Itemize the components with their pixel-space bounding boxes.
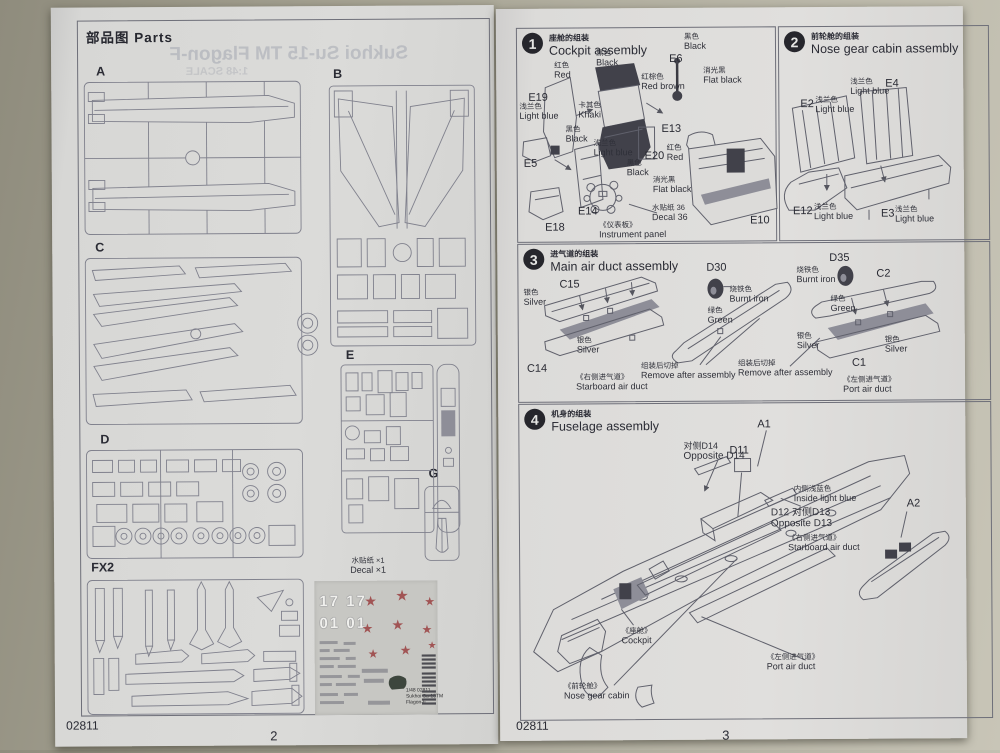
step1-badge: 1: [522, 33, 543, 54]
showthrough-scale: 1:48 SCALE: [128, 66, 248, 79]
manual-spread: Sukhoi Su-15 TM Flagon-F 1:48 SCALE 部品图 …: [0, 0, 1000, 753]
port-air-duct-label: 《左侧进气道》Port air duct: [843, 376, 896, 395]
decal-count-label: 水贴纸 ×1Decal ×1: [350, 557, 386, 576]
color-label-red: 红色Red: [667, 144, 684, 163]
part-code-c2: C2: [876, 268, 890, 280]
color-label-light-blue: 浅兰色Light blue: [850, 78, 889, 97]
sprue-c-label: C: [95, 240, 104, 254]
part-code-e14: E14: [578, 205, 598, 217]
color-label-silver: 银色Silver: [885, 336, 908, 355]
part-code-e18: E18: [545, 222, 565, 234]
color-label-silver: 银色Silver: [797, 332, 820, 351]
star-decal: ★: [361, 621, 373, 637]
star-decal: ★: [368, 647, 379, 661]
star-decal: ★: [395, 587, 409, 605]
inside-light-blue-label: 内侧浅蓝色Inside light blue: [794, 485, 857, 504]
step2-header: 2 前轮舱的组装Nose gear cabin assembly: [784, 30, 958, 56]
color-label-silver: 银色Silver: [577, 336, 600, 355]
photo-of-instruction-manual: { "left_page": { "header": "部品图 Parts", …: [0, 0, 1000, 750]
port-air-duct-label: 《左侧进气道》Port air duct: [767, 653, 820, 672]
part-code-e2: E2: [800, 98, 814, 110]
color-label-green: 绿色Green: [831, 295, 856, 314]
sprue-d-label: D: [100, 432, 109, 446]
step4-badge: 4: [524, 409, 545, 430]
part-code-d11: D11: [729, 444, 748, 456]
step3-badge: 3: [523, 249, 544, 270]
star-decal: ★: [391, 617, 404, 634]
star-decal: ★: [400, 643, 412, 659]
star-decal: ★: [424, 594, 435, 608]
decal-number-01: 01 01: [319, 615, 367, 632]
part-code-d30: D30: [706, 262, 726, 274]
step1-header: 1 座舱的组装Cockpit assembly: [522, 32, 647, 58]
sprue-b-label: B: [333, 67, 342, 81]
left-page-code: 02811: [66, 718, 99, 732]
color-label-light-blue: 浅兰色Light blue: [594, 139, 633, 158]
right-page-number: 3: [722, 728, 729, 743]
instrument-panel-label: 《仪表板》Instrument panel: [599, 221, 666, 240]
starboard-air-duct-label: 《右侧进气道》Starboard air duct: [576, 373, 648, 392]
color-label-black: 黑色Black: [627, 159, 649, 178]
color-label-light-blue: 浅兰色Light blue: [519, 103, 558, 122]
left-page-number: 2: [270, 728, 277, 743]
decal-sheet-footer: 1/48 02811 Sukhoi Su-15TM Flagon-F: [406, 688, 443, 705]
star-decal: ★: [428, 640, 437, 651]
color-label-light-blue: 浅兰色Light blue: [814, 203, 853, 222]
step4-header: 4 机身的组装Fuselage assembly: [524, 408, 659, 434]
color-label-red-brown: 红棕色Red brown: [641, 73, 685, 92]
decal-number-17: 17 17: [319, 593, 367, 610]
part-code-c1: C1: [852, 357, 866, 369]
color-label-burnt-iron: 烧铁色Burnt iron: [729, 285, 768, 304]
part-code-e4: E4: [885, 78, 899, 90]
color-label-silver: 银色Silver: [523, 289, 546, 308]
color-label-black: 黑色Black: [565, 125, 587, 144]
part-code-c14: C14: [527, 363, 547, 375]
part-code-e12: E12: [793, 205, 813, 217]
sprue-a-label: A: [96, 64, 105, 78]
step1-frame: [516, 26, 777, 243]
color-label-flat-black: 消光黑Flat black: [653, 176, 692, 195]
step4-frame: [518, 401, 993, 721]
color-label-light-blue: 浅兰色Light blue: [895, 205, 934, 224]
step3-header: 3 进气道的组装Main air duct assembly: [523, 248, 678, 274]
part-code-a2: A2: [907, 497, 921, 509]
star-decal: ★: [364, 593, 377, 610]
remove-after-assembly-label: 组装后切掉Remove after assembly: [641, 362, 736, 381]
step2-badge: 2: [784, 31, 805, 52]
right-page-code: 02811: [516, 719, 549, 733]
part-code-c15: C15: [559, 279, 579, 291]
showthrough-title: Sukhoi Su-15 TM Flagon-F: [128, 43, 408, 67]
part-code-e6: E6: [669, 53, 683, 65]
remove-after-assembly-label: 组装后切掉Remove after assembly: [738, 359, 833, 378]
opposite-d13-label: D12 对侧D13Opposite D13: [771, 507, 832, 530]
part-code-e10: E10: [750, 214, 770, 226]
part-code-e5: E5: [524, 158, 538, 170]
parts-header: 部品图 Parts: [86, 26, 173, 47]
color-label-burnt-iron: 烧铁色Burnt iron: [796, 266, 835, 285]
nose-gear-cabin-label: 《前轮舱》Nose gear cabin: [564, 682, 630, 701]
color-label-black: 黑色Black: [596, 49, 618, 68]
cockpit-label: 《座舱》Cockpit: [622, 627, 652, 646]
part-code-a1: A1: [757, 418, 771, 430]
color-label-red: 红色Red: [554, 62, 571, 81]
star-decal: ★: [422, 622, 433, 636]
sprue-fx2-label: FX2: [91, 560, 114, 574]
decal-36-label: 水贴纸 36Decal 36: [652, 204, 688, 223]
sprue-g-label: G: [429, 466, 439, 480]
color-label-green: 绿色Green: [708, 307, 733, 326]
color-label-khaki: 卡其色Khaki: [578, 101, 601, 120]
part-code-d35: D35: [829, 252, 849, 264]
part-code-e13: E13: [661, 123, 681, 135]
sprue-e-label: E: [346, 348, 354, 362]
color-label-flat-black: 消光黑Flat black: [703, 67, 742, 86]
color-label-black: 黑色Black: [684, 33, 706, 52]
starboard-air-duct-label: 《右侧进气道》Starboard air duct: [788, 534, 860, 553]
color-label-light-blue: 浅兰色Light blue: [815, 96, 854, 115]
part-code-e3: E3: [881, 208, 895, 220]
